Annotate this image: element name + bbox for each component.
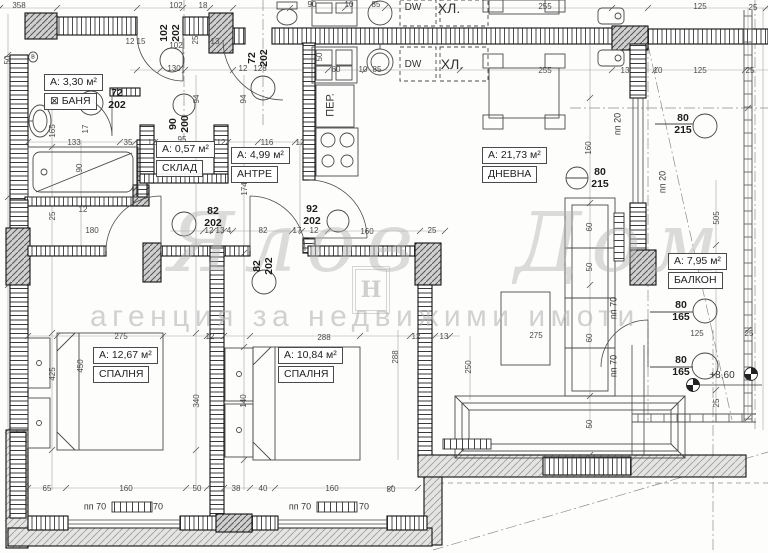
annotation-text: ПЕР. — [326, 93, 337, 117]
dimension-label: 50 — [586, 420, 594, 429]
room-area: А: 12,67 м² — [93, 347, 158, 364]
dimension-label: 12 — [412, 333, 421, 341]
dimension-label: 13 — [211, 38, 220, 46]
dimension-label: 140 — [240, 394, 248, 407]
dimension-label: 60 — [332, 66, 341, 74]
door-size-label: 92202 — [303, 203, 321, 227]
annotation-text: ХЛ. — [441, 57, 463, 71]
dimension-label: 12 — [79, 206, 88, 214]
room-label-баня: А: 3,30 м²⊠ БАНЯ — [44, 74, 103, 110]
dimension-label: 12 — [206, 333, 215, 341]
dimension-label: 82 — [259, 227, 268, 235]
dimension-label: 25 — [749, 4, 758, 12]
dimension-label: 15 — [137, 38, 146, 46]
dimension-label: 12 — [217, 139, 226, 147]
room-label-спалня: А: 12,67 м²СПАЛНЯ — [93, 347, 158, 383]
dimension-label: 450 — [77, 359, 85, 372]
room-name: ⊠ БАНЯ — [44, 93, 97, 110]
dimension-label: 85 — [373, 66, 382, 74]
room-name: БАЛКОН — [668, 272, 723, 289]
annotation-text: ХЛ. — [438, 1, 460, 15]
dimension-label: 65 — [43, 485, 52, 493]
dimension-label: 288 — [392, 350, 400, 363]
dimension-label: 340 — [193, 394, 201, 407]
annotation-text: пп 70 — [610, 297, 619, 319]
dimension-label: 250 — [465, 360, 473, 373]
door-size-label: 82202 — [204, 205, 222, 229]
annotation-text: пп 20 — [659, 171, 668, 193]
dimension-label: 4 — [227, 227, 231, 235]
dimension-label: 275 — [529, 332, 542, 340]
dimension-label: 50 — [193, 485, 202, 493]
room-name: СПАЛНЯ — [93, 366, 149, 383]
dimension-label: 125 — [693, 3, 706, 11]
annotation-text: в — [28, 52, 38, 63]
door-size-label: 80165 — [672, 354, 690, 378]
annotation-text: пп 70 — [289, 503, 311, 512]
dimension-label: 13 — [621, 67, 630, 75]
annotation-text: 70 — [359, 503, 369, 512]
room-area: А: 0,57 м² — [156, 141, 215, 158]
dimension-label: 85 — [372, 1, 381, 9]
dimension-label: 130 — [167, 65, 180, 73]
room-label-антре: А: 4,99 м²АНТРЕ — [231, 147, 290, 183]
annotation-text: пп 70 — [610, 355, 619, 377]
dimension-label: 102 — [169, 42, 182, 50]
dimension-label: 94 — [193, 95, 201, 104]
room-label-склад: А: 0,57 м²СКЛАД — [156, 141, 215, 177]
annotation-text: DW — [405, 60, 422, 70]
annotation-text: DW — [405, 3, 422, 13]
dimension-label: 90 — [76, 164, 84, 173]
dimension-label: 165 — [49, 124, 57, 137]
dimension-label: 505 — [713, 211, 721, 224]
door-size-label: 80165 — [672, 299, 690, 323]
dimension-label: 90 — [308, 1, 317, 9]
door-size-label: 72202 — [108, 87, 126, 111]
door-size-label: 80215 — [591, 166, 609, 190]
dimension-label: 60 — [586, 334, 594, 343]
dimension-label: 275 — [114, 333, 127, 341]
dimension-label: 133 — [67, 139, 80, 147]
dimension-label: 12 — [296, 139, 305, 147]
dimension-label: 35 — [124, 139, 133, 147]
dimension-label: 25 — [713, 399, 721, 408]
dimension-label: 125 — [690, 330, 703, 338]
room-area: А: 3,30 м² — [44, 74, 103, 91]
dimension-label: 10 — [654, 67, 663, 75]
dimension-label: 25 — [192, 36, 200, 45]
annotation-text: пп 70 — [84, 503, 106, 512]
dimension-label: 10 — [359, 66, 368, 74]
dimension-label: 10 — [345, 1, 354, 9]
dimension-label: 160 — [325, 485, 338, 493]
door-size-label: 102202 — [158, 24, 182, 42]
dimension-label: 50 — [4, 56, 12, 65]
room-label-балкон: А: 7,95 м²БАЛКОН — [668, 253, 727, 289]
dimension-label: 18 — [199, 2, 208, 10]
dimension-label: 38 — [232, 485, 241, 493]
dimension-label: 174 — [241, 182, 249, 195]
dimension-label: 116 — [261, 139, 274, 147]
dimension-label: 180 — [85, 227, 98, 235]
door-size-label: 90200 — [167, 115, 191, 133]
dimension-label: 12 — [310, 227, 319, 235]
door-size-label: 80215 — [674, 112, 692, 136]
room-name: АНТРЕ — [231, 166, 278, 183]
dimension-label: 25 — [49, 212, 57, 221]
dimension-label: 17 — [293, 227, 302, 235]
room-area: А: 21,73 м² — [482, 147, 547, 164]
room-label-спалня: А: 10,84 м²СПАЛНЯ — [278, 347, 343, 383]
dimension-label: 125 — [693, 67, 706, 75]
dimension-label: 17 — [82, 125, 90, 134]
dimension-label: 60 — [586, 223, 594, 232]
floorplan-labels: 3581021890108525512525121510213251301212… — [0, 0, 768, 553]
dimension-label: 13 — [440, 333, 449, 341]
annotation-text: пп 20 — [614, 113, 623, 135]
dimension-label: 12 — [126, 38, 135, 46]
room-name: ДНЕВНА — [482, 166, 537, 183]
dimension-label: 50 — [316, 53, 324, 62]
dimension-label: 358 — [12, 2, 25, 10]
room-area: А: 7,95 м² — [668, 253, 727, 270]
dimension-label: 160 — [119, 485, 132, 493]
dimension-label: 50 — [586, 263, 594, 272]
dimension-label: 25 — [745, 330, 754, 338]
room-area: А: 4,99 м² — [231, 147, 290, 164]
dimension-label: 94 — [240, 95, 248, 104]
room-area: А: 10,84 м² — [278, 347, 343, 364]
door-size-label: 72202 — [246, 49, 270, 67]
room-name: СКЛАД — [156, 160, 203, 177]
dimension-label: 50 — [387, 486, 396, 494]
room-label-дневна: А: 21,73 м²ДНЕВНА — [482, 147, 547, 183]
dimension-label: 25 — [746, 67, 755, 75]
room-name: СПАЛНЯ — [278, 366, 334, 383]
dimension-label: 160 — [360, 228, 373, 236]
annotation-text: 70 — [153, 503, 163, 512]
dimension-label: 160 — [585, 141, 593, 154]
dimension-label: 40 — [259, 485, 268, 493]
floorplan-page: Ялов Дом Н агенция за недвижими имоти 35… — [0, 0, 768, 553]
dimension-label: 255 — [538, 3, 551, 11]
annotation-text: +8,60 — [709, 371, 734, 381]
dimension-label: 425 — [49, 367, 57, 380]
dimension-label: 102 — [169, 2, 182, 10]
dimension-label: 255 — [538, 67, 551, 75]
door-size-label: 82202 — [251, 257, 275, 275]
dimension-label: 25 — [428, 227, 437, 235]
dimension-label: 288 — [317, 334, 330, 342]
